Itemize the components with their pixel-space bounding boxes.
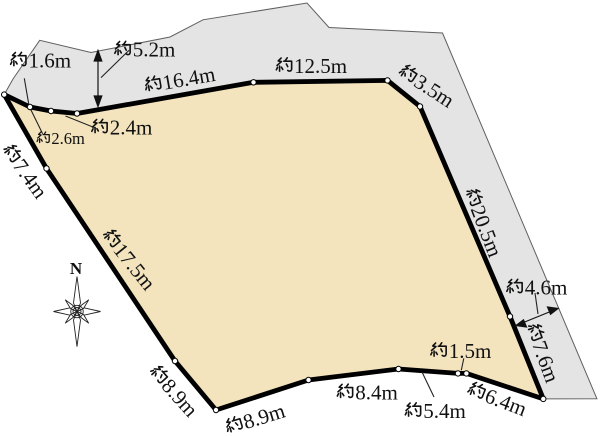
svg-text:2.4m: 2.4m — [110, 116, 153, 140]
svg-text:5.4m: 5.4m — [423, 399, 466, 423]
svg-text:4.6m: 4.6m — [525, 276, 568, 300]
svg-text:12.5m: 12.5m — [294, 54, 347, 78]
svg-text:8.4m: 8.4m — [355, 380, 398, 404]
svg-text:1.6m: 1.6m — [29, 49, 72, 73]
svg-text:1.5m: 1.5m — [449, 339, 492, 363]
svg-text:2.6m: 2.6m — [51, 129, 85, 148]
svg-text:N: N — [70, 259, 83, 278]
svg-text:5.2m: 5.2m — [133, 38, 176, 62]
